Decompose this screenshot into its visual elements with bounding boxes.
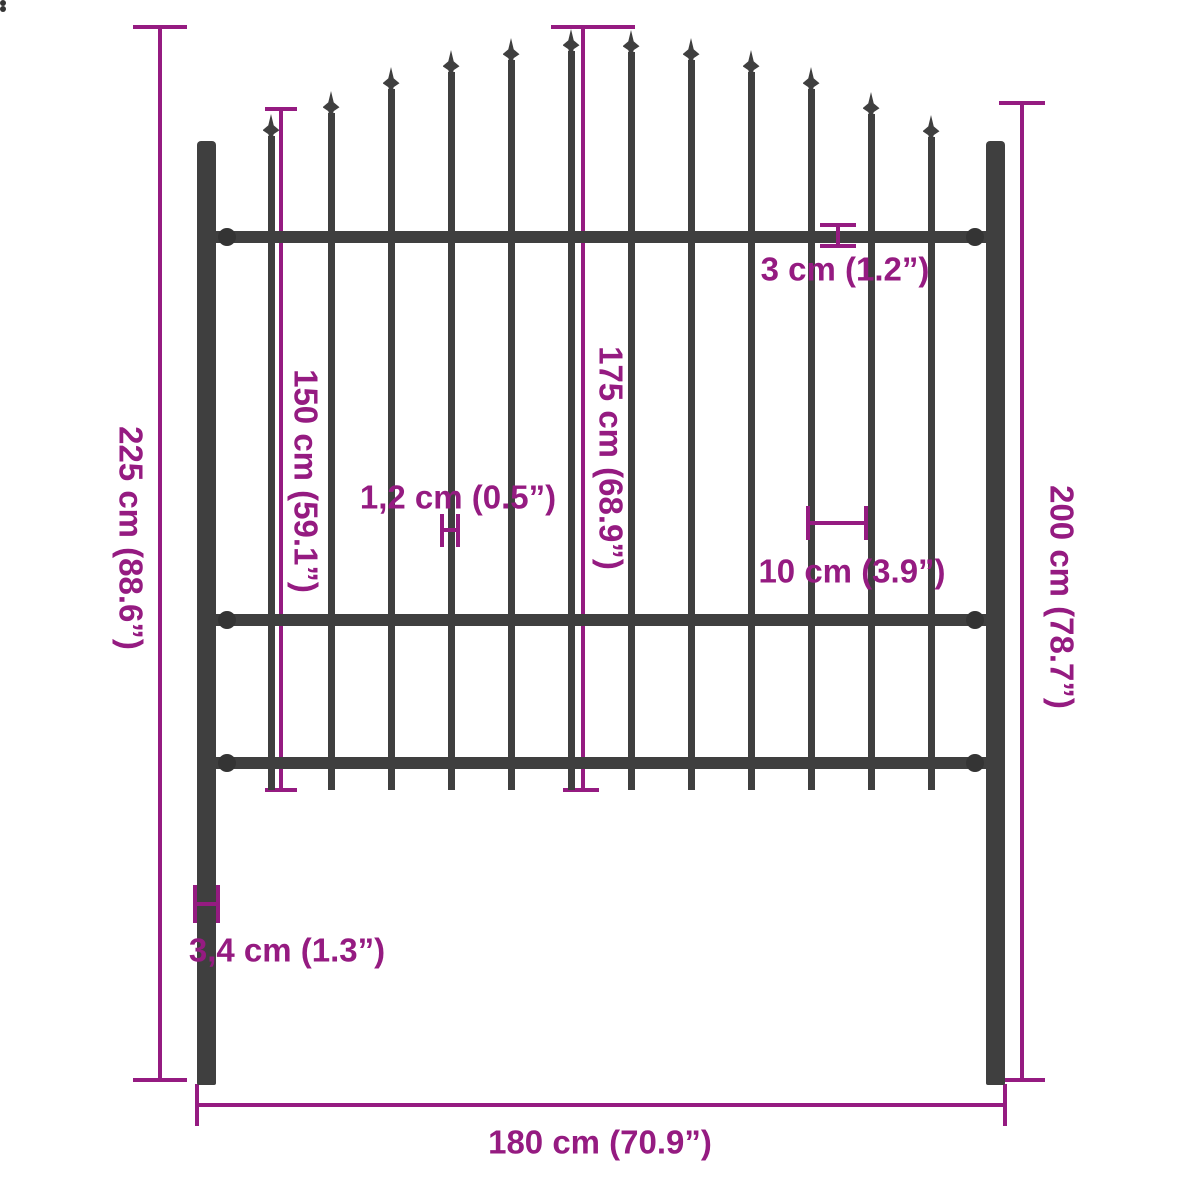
annotations-layer: 225 cm (88.6”) 150 cm (59.1”) 175 cm (68… <box>0 0 1200 1200</box>
label-picket-spacing: 10 cm (3.9”) <box>758 555 945 588</box>
fence-dimension-diagram: 225 cm (88.6”) 150 cm (59.1”) 175 cm (68… <box>0 0 1200 1200</box>
label-overall-width: 180 cm (70.9”) <box>488 1126 712 1159</box>
marker-picket-spacing-cross <box>806 521 868 525</box>
label-picket-height: 150 cm (59.1”) <box>290 369 323 593</box>
label-picket-width: 1,2 cm (0.5”) <box>360 481 556 514</box>
marker-picket-width-cross <box>440 528 460 532</box>
label-post-width: 3,4 cm (1.3”) <box>189 934 385 967</box>
label-post-height: 200 cm (78.7”) <box>1046 485 1079 709</box>
label-overall-height: 225 cm (88.6”) <box>115 426 148 650</box>
label-arch-center-height: 175 cm (68.9”) <box>595 346 628 570</box>
marker-picket-spacing-tick-right <box>864 506 868 540</box>
label-rail-thickness: 3 cm (1.2”) <box>761 253 930 286</box>
marker-post-width-cross <box>193 902 220 906</box>
marker-rail-thickness-bottom <box>820 244 856 248</box>
